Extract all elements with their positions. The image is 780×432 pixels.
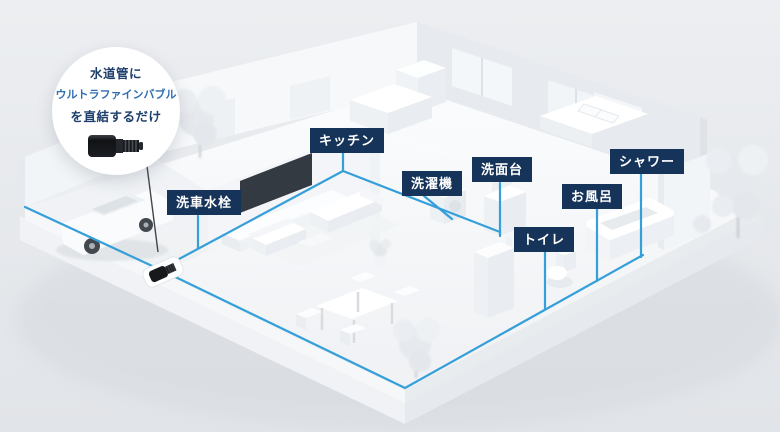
label-bath: お風呂 [562, 184, 622, 209]
label-kitchen: キッチン [310, 128, 384, 153]
label-washing-machine: 洗濯機 [402, 171, 462, 196]
label-washbasin: 洗面台 [472, 157, 532, 182]
callout-line-1: 水道管に [90, 63, 142, 82]
callout-line-3: を直結するだけ [70, 106, 161, 125]
label-shower: シャワー [610, 149, 684, 174]
promo-illustration-page: { "illustration": { "callout": { "line1"… [0, 0, 780, 432]
hall-cabinet [474, 242, 514, 318]
device-callout-bubble: 水道管に ウルトラファインバブル を直結するだけ [52, 47, 180, 175]
callout-line-2: ウルトラファインバブル [56, 86, 177, 102]
label-car-wash-faucet: 洗車水栓 [167, 190, 241, 215]
ultrafine-bubble-unit-icon [87, 132, 145, 160]
label-toilet: トイレ [514, 227, 574, 252]
